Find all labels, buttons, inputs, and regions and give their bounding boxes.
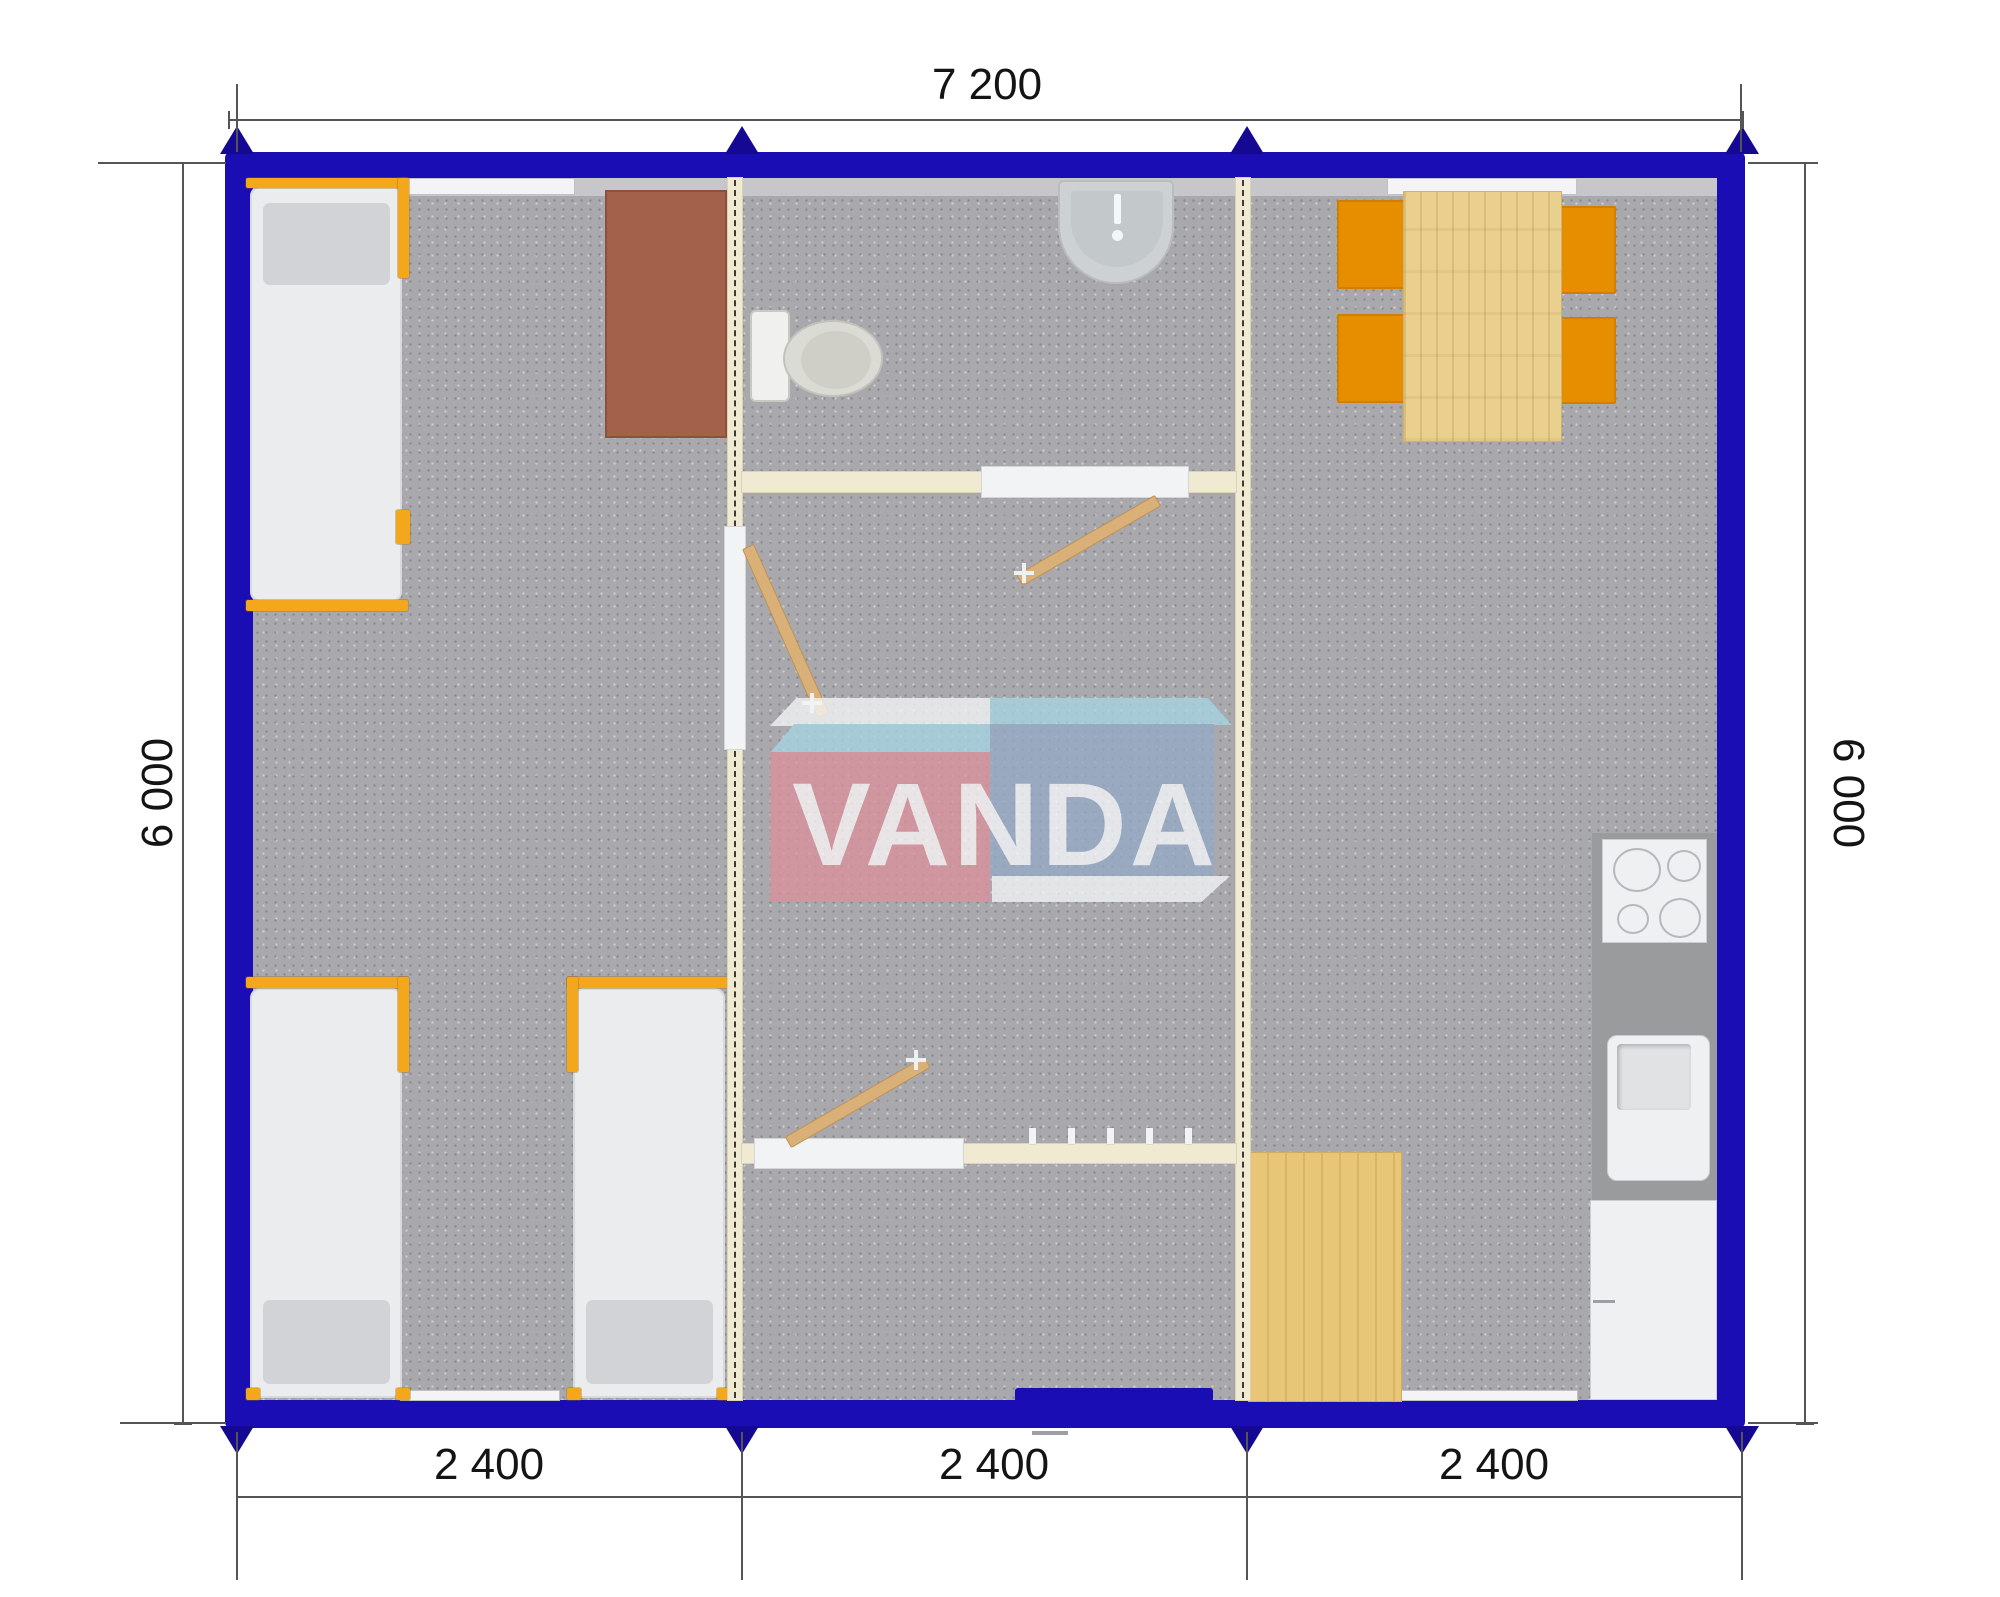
dim-line-bottom [237, 1496, 1743, 1498]
door-handle-vestibule [906, 1050, 926, 1070]
dim-label-right: 6 000 [1823, 693, 1873, 893]
burner-large-br [1659, 898, 1701, 938]
watermark-white-band [770, 698, 990, 726]
stove-cooktop [1602, 839, 1707, 943]
dim-label-module3: 2 400 [1394, 1440, 1594, 1490]
doorway-module1-module2 [725, 527, 745, 749]
ext-line-top-left [236, 84, 238, 152]
coat-hook-3 [1107, 1128, 1114, 1144]
bed-top-left-frame-nub [396, 510, 410, 544]
dim-tick-top-left [228, 111, 230, 129]
bed-bottom-left-nub-a [246, 1388, 260, 1400]
coat-hook-1 [1029, 1128, 1036, 1144]
joint-arrow-top-2 [725, 126, 759, 154]
kitchen-sink-basin [1617, 1044, 1691, 1110]
bathroom-doorway [982, 467, 1188, 497]
bed-bottom-left-frame-top [246, 977, 408, 988]
coat-hook-2 [1068, 1128, 1075, 1144]
watermark-brand-text: VANDA [790, 766, 1220, 884]
watermark-pink-top-face [770, 724, 990, 753]
dim-tick-top-right [1742, 111, 1744, 129]
entrance-door [1015, 1388, 1213, 1402]
ext-line-left-bottom [120, 1422, 226, 1424]
chair-left-top [1337, 200, 1407, 289]
vestibule-doorway [755, 1139, 963, 1168]
burner-small-tr [1667, 850, 1701, 882]
coat-hook-4 [1146, 1128, 1153, 1144]
window-top-module1 [385, 178, 575, 195]
bed-top-left-frame-right [398, 178, 409, 278]
ext-line-bottom-3 [1246, 1432, 1248, 1580]
watermark-blue-top-face [990, 698, 1232, 725]
dim-tick-bottom-2 [741, 1488, 743, 1506]
dim-tick-bottom-4 [1741, 1488, 1743, 1506]
window-bottom-module1 [400, 1390, 560, 1401]
burner-small-bl [1617, 904, 1649, 934]
ext-line-bottom-2 [741, 1432, 743, 1580]
bed-bottom-left-nub-b [396, 1388, 410, 1400]
entrance-door-mark [1032, 1431, 1068, 1435]
bed-bottom-right-frame-top [567, 977, 731, 988]
dim-label-module1: 2 400 [389, 1440, 589, 1490]
dim-label-width: 7 200 [887, 60, 1087, 110]
dim-tick-bottom-3 [1246, 1488, 1248, 1506]
ext-line-bottom-1 [236, 1432, 238, 1580]
cabinet-handle [1593, 1300, 1615, 1303]
chair-left-bottom [1337, 314, 1407, 403]
kitchen-sink-unit [1607, 1035, 1710, 1181]
dim-label-module2: 2 400 [894, 1440, 1094, 1490]
bed-top-left-pillow [263, 203, 390, 285]
floor-plan-canvas: VANDA 7 200 6 000 6 000 2 400 2 400 2 40… [0, 0, 2000, 1597]
ext-line-right-bottom [1748, 1422, 1818, 1424]
joint-arrow-top-4 [1725, 126, 1759, 154]
ext-line-top-right [1740, 84, 1742, 152]
bed-bottom-right-frame-left [567, 977, 578, 1072]
partition-module1-module2 [728, 178, 742, 1400]
dim-tick-bottom-1 [236, 1488, 238, 1506]
door-handle-bathroom [1014, 563, 1034, 583]
bed-top-left-frame-top [246, 178, 408, 188]
ext-line-right-top [1748, 162, 1818, 164]
wooden-floor-mat [1248, 1152, 1402, 1402]
coat-hook-5 [1185, 1128, 1192, 1144]
ext-line-bottom-4 [1741, 1432, 1743, 1580]
bed-bottom-left-pillow [263, 1300, 390, 1384]
ext-line-left-top [98, 162, 226, 164]
dim-line-right [1804, 163, 1806, 1425]
bed-top-left-frame-bottom [246, 600, 408, 611]
bed-bottom-right-pillow [586, 1300, 713, 1384]
bed-bottom-left-frame-right [398, 977, 409, 1072]
burner-large-tl [1613, 848, 1661, 892]
dining-table [1403, 191, 1562, 442]
partition-module2-module3 [1236, 178, 1250, 1400]
bed-bottom-right-nub-a [567, 1388, 581, 1400]
window-bottom-module3 [1387, 1390, 1578, 1401]
dim-line-top [229, 119, 1744, 121]
vanda-watermark: VANDA [770, 698, 1232, 906]
joint-arrow-top-3 [1230, 126, 1264, 154]
wardrobe-desk [605, 190, 727, 438]
toilet-bowl [783, 320, 883, 397]
dim-label-left: 6 000 [133, 693, 183, 893]
